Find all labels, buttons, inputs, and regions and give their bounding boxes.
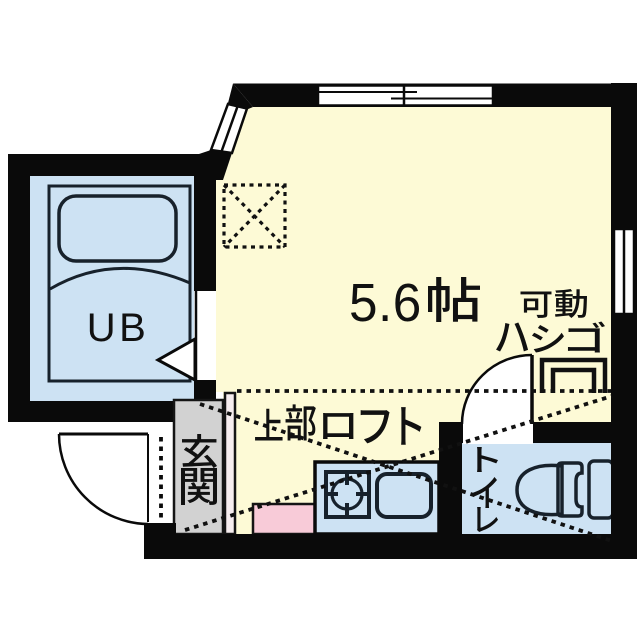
svg-text:UB: UB — [87, 306, 150, 350]
svg-text:5.6: 5.6 — [349, 273, 422, 333]
